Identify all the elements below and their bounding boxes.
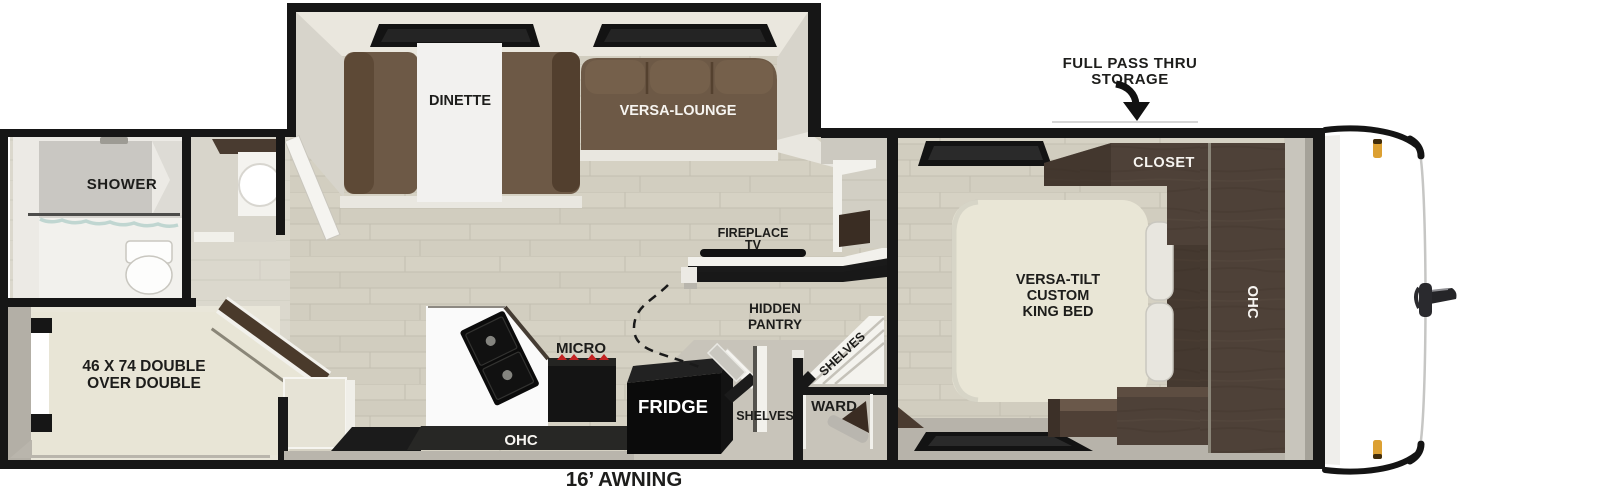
svg-text:46 X 74 DOUBLE: 46 X 74 DOUBLE	[82, 358, 205, 375]
svg-text:DINETTE: DINETTE	[429, 93, 491, 109]
svg-text:SHELVES: SHELVES	[736, 409, 793, 423]
svg-text:STORAGE: STORAGE	[1091, 71, 1168, 88]
svg-text:WARD: WARD	[811, 398, 857, 415]
svg-text:PANTRY: PANTRY	[748, 317, 802, 332]
svg-text:SHOWER: SHOWER	[87, 176, 158, 193]
svg-text:CLOSET: CLOSET	[1133, 155, 1195, 171]
svg-text:VERSA-LOUNGE: VERSA-LOUNGE	[620, 103, 737, 119]
svg-text:HIDDEN: HIDDEN	[749, 301, 801, 316]
svg-text:FULL PASS THRU: FULL PASS THRU	[1063, 55, 1198, 72]
svg-text:OVER DOUBLE: OVER DOUBLE	[87, 375, 201, 392]
svg-text:OHC: OHC	[1244, 285, 1261, 319]
svg-text:MICRO: MICRO	[556, 340, 606, 357]
svg-text:FRIDGE: FRIDGE	[638, 396, 708, 417]
svg-text:TV: TV	[745, 238, 762, 252]
svg-text:16’ AWNING: 16’ AWNING	[566, 468, 683, 488]
svg-text:KING BED: KING BED	[1023, 304, 1094, 320]
svg-text:CUSTOM: CUSTOM	[1027, 288, 1090, 304]
svg-text:VERSA-TILT: VERSA-TILT	[1016, 272, 1100, 288]
svg-text:OHC: OHC	[504, 432, 538, 449]
